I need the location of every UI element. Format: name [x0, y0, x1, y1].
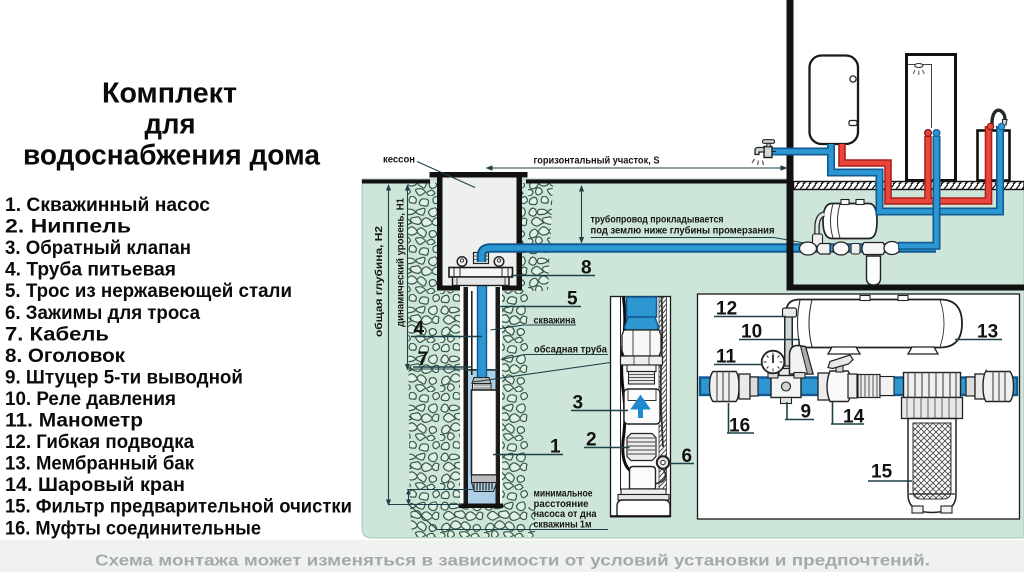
svg-text:15. Фильтр предварительной очи: 15. Фильтр предварительной очистки [5, 497, 352, 518]
svg-text:для: для [145, 109, 196, 141]
svg-text:14. Шаровый кран: 14. Шаровый кран [5, 475, 185, 496]
svg-text:1. Скважинный насос: 1. Скважинный насос [5, 195, 210, 216]
svg-text:4. Труба питьевая: 4. Труба питьевая [5, 260, 176, 281]
svg-text:Комплект: Комплект [102, 78, 237, 110]
svg-text:водоснабжения дома: водоснабжения дома [23, 140, 321, 172]
svg-text:6. Зажимы для троса: 6. Зажимы для троса [5, 303, 200, 324]
svg-text:динамический уровень, Н1: динамический уровень, Н1 [395, 198, 407, 327]
svg-text:10. Реле давления: 10. Реле давления [5, 389, 176, 410]
svg-text:11. Манометр: 11. Манометр [5, 411, 143, 432]
svg-text:7. Кабель: 7. Кабель [5, 324, 109, 345]
svg-text:13. Мембранный бак: 13. Мембранный бак [5, 454, 194, 475]
svg-text:кессон: кессон [383, 154, 415, 166]
svg-text:12. Гибкая подводка: 12. Гибкая подводка [5, 432, 194, 453]
svg-text:общая глубина, Н2: общая глубина, Н2 [373, 226, 385, 337]
svg-text:2. Ниппель: 2. Ниппель [5, 217, 131, 238]
svg-text:обсадная труба: обсадная труба [534, 344, 607, 356]
svg-text:8. Оголовок: 8. Оголовок [5, 346, 126, 367]
svg-text:Схема монтажа может изменяться: Схема монтажа может изменяться в зависим… [95, 553, 930, 570]
svg-text:под землю ниже глубины промерз: под землю ниже глубины промерзания [591, 225, 775, 237]
svg-text:16. Муфты соединительные: 16. Муфты соединительные [5, 518, 261, 539]
svg-text:9. Штуцер 5-ти выводной: 9. Штуцер 5-ти выводной [5, 367, 243, 388]
svg-text:3. Обратный клапан: 3. Обратный клапан [5, 238, 191, 259]
svg-text:горизонтальный участок, S: горизонтальный участок, S [534, 155, 660, 167]
svg-text:скважины 1м: скважины 1м [534, 518, 592, 530]
svg-text:5. Трос из нержавеющей стали: 5. Трос из нержавеющей стали [5, 281, 292, 302]
svg-text:15: 15 [871, 462, 893, 483]
